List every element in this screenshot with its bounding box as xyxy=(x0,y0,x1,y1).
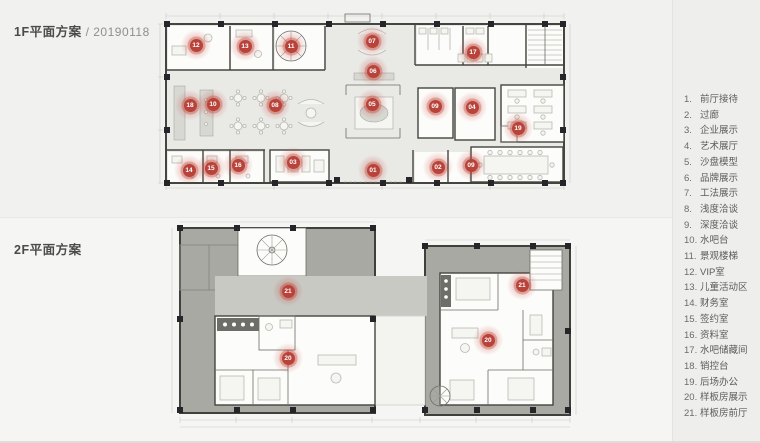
legend-item: 19.后场办公 xyxy=(684,375,748,391)
legend-item-label: 沙盘模型 xyxy=(700,155,738,171)
floor1-title: 1F平面方案/ 20190118 xyxy=(14,21,150,40)
legend-item-label: 后场办公 xyxy=(700,375,738,391)
legend-item-number: 13. xyxy=(684,280,700,296)
legend-item-label: 景观楼梯 xyxy=(700,249,738,265)
legend-item-number: 18. xyxy=(684,359,700,375)
legend-item-label: 资料室 xyxy=(700,328,729,344)
legend-item: 13.儿童活动区 xyxy=(684,280,748,296)
legend-item-number: 16. xyxy=(684,328,700,344)
legend-item-label: VIP室 xyxy=(700,265,725,281)
page: { "sections": { "floor1": { "title": "1F… xyxy=(0,0,760,443)
floor1-spiral-stair xyxy=(276,31,306,61)
floor1-sand-table xyxy=(355,97,393,129)
legend-item: 20.样板房展示 xyxy=(684,390,748,406)
legend-item-number: 1. xyxy=(684,92,700,108)
legend-item-label: 样板房前厅 xyxy=(700,406,748,422)
section-divider xyxy=(0,217,672,218)
legend-item-label: 财务室 xyxy=(700,296,729,312)
legend-item-number: 19. xyxy=(684,375,700,391)
floor2-plan-drawing xyxy=(168,220,580,430)
legend-item-number: 6. xyxy=(684,171,700,187)
legend-item-label: 品牌展示 xyxy=(700,171,738,187)
legend-item-label: 水吧储藏间 xyxy=(700,343,748,359)
legend-item-label: 工法展示 xyxy=(700,186,738,202)
legend-item-number: 9. xyxy=(684,218,700,234)
legend-item-label: 企业展示 xyxy=(700,123,738,139)
legend-item-number: 8. xyxy=(684,202,700,218)
legend-list: 1.前厅接待2.过廊3.企业展示4.艺术展厅5.沙盘模型6.品牌展示7.工法展示… xyxy=(684,92,748,422)
legend-item: 8.浅度洽谈 xyxy=(684,202,748,218)
legend-item: 5.沙盘模型 xyxy=(684,155,748,171)
floor2-right-interior xyxy=(430,250,562,406)
legend-item-number: 12. xyxy=(684,265,700,281)
floor1-date: / 20190118 xyxy=(86,25,150,39)
legend-item-number: 10. xyxy=(684,233,700,249)
legend-item-label: 过廊 xyxy=(700,108,719,124)
legend-item: 17.水吧储藏间 xyxy=(684,343,748,359)
legend-item-number: 11. xyxy=(684,249,700,265)
legend-item: 14.财务室 xyxy=(684,296,748,312)
legend-item: 18.销控台 xyxy=(684,359,748,375)
legend-item-number: 7. xyxy=(684,186,700,202)
legend-item: 1.前厅接待 xyxy=(684,92,748,108)
legend-item-number: 2. xyxy=(684,108,700,124)
floor2-title: 2F平面方案 xyxy=(14,239,82,258)
legend-item: 4.艺术展厅 xyxy=(684,139,748,155)
legend-item-label: 销控台 xyxy=(700,359,729,375)
legend-item-label: 签约室 xyxy=(700,312,729,328)
legend-item-number: 3. xyxy=(684,123,700,139)
legend-item-number: 5. xyxy=(684,155,700,171)
legend-panel: 1.前厅接待2.过廊3.企业展示4.艺术展厅5.沙盘模型6.品牌展示7.工法展示… xyxy=(672,0,760,443)
legend-item: 9.深度洽谈 xyxy=(684,218,748,234)
legend-item: 10.水吧台 xyxy=(684,233,748,249)
legend-item-number: 14. xyxy=(684,296,700,312)
legend-item: 21.样板房前厅 xyxy=(684,406,748,422)
floor2-title-text: 2F平面方案 xyxy=(14,243,82,257)
legend-item: 16.资料室 xyxy=(684,328,748,344)
legend-item-number: 4. xyxy=(684,139,700,155)
legend-item-label: 浅度洽谈 xyxy=(700,202,738,218)
legend-item-number: 17. xyxy=(684,343,700,359)
legend-item-label: 前厅接待 xyxy=(700,92,738,108)
legend-item: 11.景观楼梯 xyxy=(684,249,748,265)
floor1-title-text: 1F平面方案 xyxy=(14,25,82,39)
legend-item-label: 艺术展厅 xyxy=(700,139,738,155)
floor1-canopy xyxy=(345,14,370,22)
floor1-plan-drawing xyxy=(158,10,573,190)
floor2-plan: 21202120 xyxy=(168,220,580,430)
floor2-void xyxy=(375,316,425,405)
legend-item-label: 样板房展示 xyxy=(700,390,748,406)
floor2-corridor-link xyxy=(373,276,427,316)
legend-item-number: 20. xyxy=(684,390,700,406)
legend-item: 3.企业展示 xyxy=(684,123,748,139)
floor1-plan: 1213110717181008060509041914151603010209 xyxy=(158,10,573,190)
legend-item: 7.工法展示 xyxy=(684,186,748,202)
legend-item-number: 15. xyxy=(684,312,700,328)
legend-item: 15.签约室 xyxy=(684,312,748,328)
legend-item-label: 水吧台 xyxy=(700,233,729,249)
legend-item-label: 深度洽谈 xyxy=(700,218,738,234)
legend-item-label: 儿童活动区 xyxy=(700,280,748,296)
legend-item: 2.过廊 xyxy=(684,108,748,124)
legend-item: 6.品牌展示 xyxy=(684,171,748,187)
legend-item-number: 21. xyxy=(684,406,700,422)
legend-item: 12.VIP室 xyxy=(684,265,748,281)
